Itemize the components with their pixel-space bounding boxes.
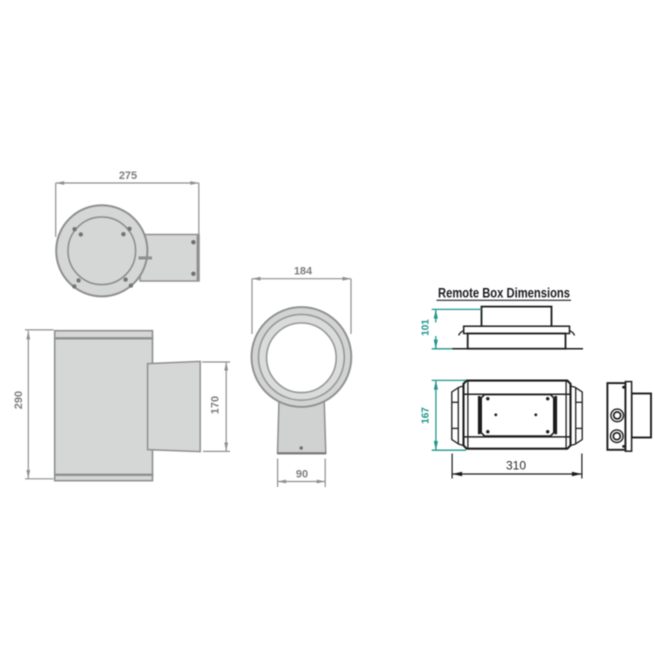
svg-text:170: 170 [209, 396, 221, 414]
svg-text:184: 184 [294, 266, 313, 278]
svg-text:90: 90 [296, 469, 308, 481]
svg-text:310: 310 [506, 459, 526, 473]
svg-text:101: 101 [421, 319, 432, 336]
svg-text:Remote Box Dimensions: Remote Box Dimensions [438, 286, 570, 301]
svg-text:275: 275 [119, 170, 137, 182]
svg-text:290: 290 [13, 391, 25, 409]
svg-text:167: 167 [421, 407, 432, 424]
